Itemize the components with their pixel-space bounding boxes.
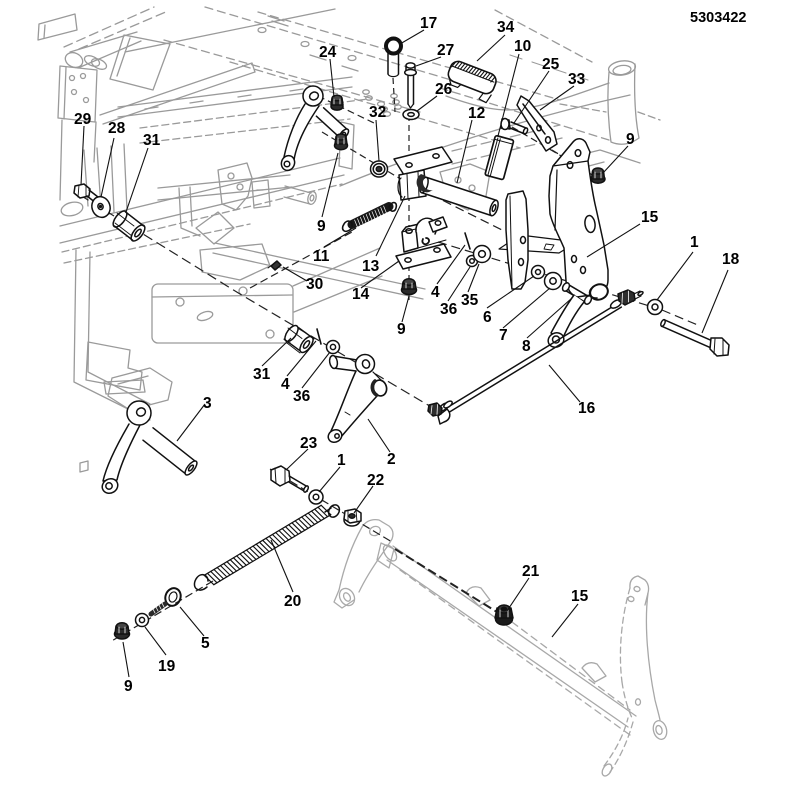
svg-text:2: 2 bbox=[387, 451, 396, 468]
svg-text:25: 25 bbox=[542, 56, 560, 73]
svg-text:30: 30 bbox=[306, 276, 323, 293]
svg-text:16: 16 bbox=[578, 400, 596, 417]
svg-text:11: 11 bbox=[313, 248, 330, 265]
svg-text:23: 23 bbox=[300, 435, 318, 452]
svg-text:31: 31 bbox=[253, 366, 271, 383]
svg-text:31: 31 bbox=[143, 132, 161, 149]
svg-text:32: 32 bbox=[369, 104, 386, 121]
svg-text:5: 5 bbox=[201, 635, 210, 652]
svg-text:1: 1 bbox=[337, 452, 346, 469]
svg-text:19: 19 bbox=[158, 658, 176, 675]
svg-text:1: 1 bbox=[690, 234, 699, 251]
svg-text:4: 4 bbox=[431, 284, 440, 301]
svg-text:33: 33 bbox=[568, 71, 586, 88]
svg-text:9: 9 bbox=[124, 678, 133, 695]
svg-text:4: 4 bbox=[281, 376, 290, 393]
svg-text:9: 9 bbox=[397, 321, 406, 338]
svg-text:18: 18 bbox=[722, 251, 740, 268]
svg-text:15: 15 bbox=[641, 209, 659, 226]
svg-text:26: 26 bbox=[435, 81, 453, 98]
svg-text:24: 24 bbox=[319, 44, 337, 61]
svg-text:14: 14 bbox=[352, 286, 370, 303]
svg-text:3: 3 bbox=[203, 395, 212, 412]
svg-text:17: 17 bbox=[420, 15, 437, 32]
svg-text:34: 34 bbox=[497, 19, 515, 36]
svg-text:9: 9 bbox=[317, 218, 326, 235]
svg-text:15: 15 bbox=[571, 588, 589, 605]
svg-text:9: 9 bbox=[626, 131, 635, 148]
svg-text:36: 36 bbox=[293, 388, 311, 405]
svg-text:8: 8 bbox=[522, 338, 531, 355]
svg-text:10: 10 bbox=[514, 38, 531, 55]
svg-text:35: 35 bbox=[461, 292, 479, 309]
svg-text:6: 6 bbox=[483, 309, 492, 326]
svg-text:7: 7 bbox=[499, 327, 508, 344]
svg-text:22: 22 bbox=[367, 472, 384, 489]
svg-text:21: 21 bbox=[522, 563, 540, 580]
svg-text:27: 27 bbox=[437, 42, 454, 59]
svg-text:20: 20 bbox=[284, 593, 301, 610]
svg-text:29: 29 bbox=[74, 111, 92, 128]
svg-text:12: 12 bbox=[468, 105, 485, 122]
svg-text:36: 36 bbox=[440, 301, 458, 318]
svg-text:5303422: 5303422 bbox=[690, 10, 746, 26]
svg-text:13: 13 bbox=[362, 258, 380, 275]
svg-text:28: 28 bbox=[108, 120, 126, 137]
